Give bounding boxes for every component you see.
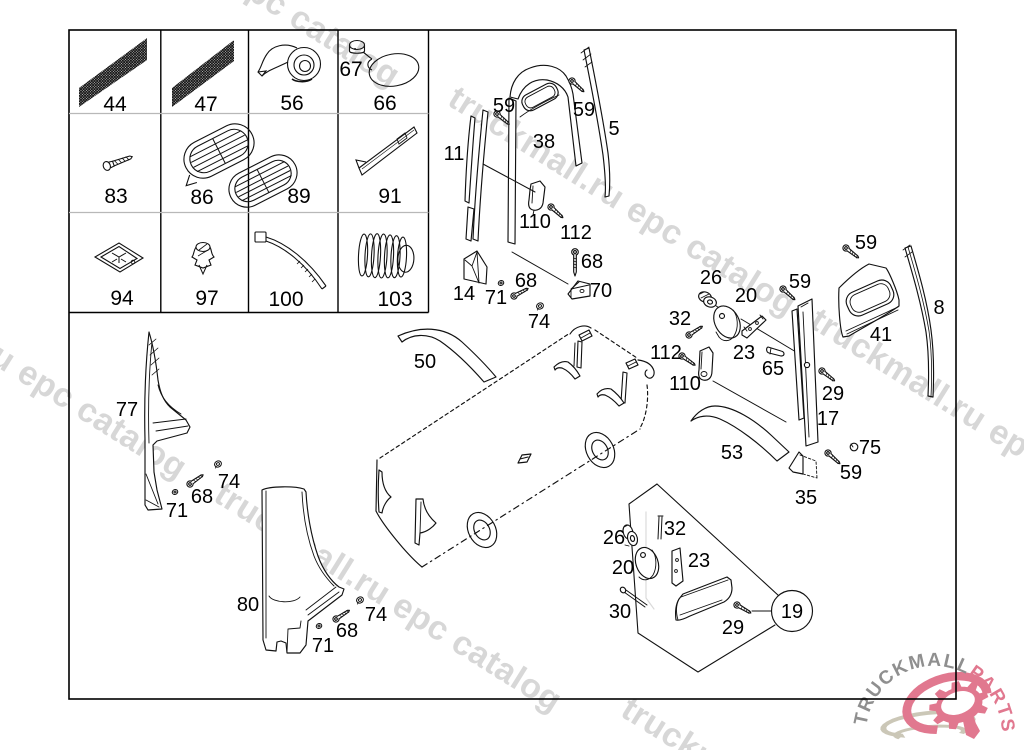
svg-text:19: 19 (781, 601, 803, 623)
svg-text:67: 67 (339, 58, 362, 81)
svg-text:59: 59 (493, 95, 515, 117)
svg-text:71: 71 (485, 287, 507, 309)
svg-text:59: 59 (789, 271, 811, 293)
svg-text:100: 100 (268, 288, 303, 311)
svg-text:20: 20 (735, 285, 757, 307)
svg-text:11: 11 (444, 143, 465, 165)
svg-text:68: 68 (191, 486, 213, 508)
svg-text:20: 20 (612, 557, 634, 579)
svg-text:26: 26 (603, 527, 625, 549)
svg-text:91: 91 (378, 185, 401, 208)
svg-text:71: 71 (166, 500, 188, 522)
svg-text:35: 35 (795, 487, 817, 509)
svg-text:89: 89 (287, 185, 310, 208)
svg-text:53: 53 (721, 442, 743, 464)
svg-text:38: 38 (533, 131, 555, 153)
svg-text:97: 97 (195, 287, 218, 310)
svg-text:8: 8 (933, 297, 944, 319)
svg-text:29: 29 (722, 617, 744, 639)
svg-text:5: 5 (608, 118, 619, 140)
svg-text:14: 14 (453, 283, 475, 305)
svg-text:68: 68 (336, 620, 358, 642)
svg-text:80: 80 (237, 594, 259, 616)
svg-text:74: 74 (218, 471, 240, 493)
svg-text:59: 59 (855, 232, 877, 254)
svg-text:30: 30 (609, 601, 631, 623)
svg-text:32: 32 (669, 308, 691, 330)
svg-text:74: 74 (528, 311, 550, 333)
svg-text:23: 23 (733, 342, 755, 364)
svg-text:70: 70 (590, 280, 612, 302)
svg-text:103: 103 (377, 288, 412, 311)
svg-text:23: 23 (688, 550, 710, 572)
svg-text:47: 47 (194, 93, 217, 116)
svg-text:59: 59 (573, 99, 595, 121)
svg-text:65: 65 (762, 358, 784, 380)
svg-text:66: 66 (373, 92, 396, 115)
svg-text:77: 77 (116, 399, 138, 421)
svg-text:71: 71 (312, 635, 334, 657)
svg-text:112: 112 (560, 222, 592, 244)
svg-text:68: 68 (515, 270, 537, 292)
svg-text:86: 86 (190, 186, 213, 209)
svg-text:74: 74 (365, 604, 387, 626)
svg-text:68: 68 (581, 251, 603, 273)
svg-text:50: 50 (414, 351, 436, 373)
svg-text:59: 59 (840, 462, 862, 484)
svg-text:94: 94 (110, 287, 134, 310)
svg-text:17: 17 (817, 408, 839, 430)
svg-text:110: 110 (519, 211, 551, 233)
svg-text:75: 75 (859, 437, 881, 459)
svg-text:truckmall.ru epc catalog: truckmall.ru epc catalog (0, 242, 194, 487)
svg-text:29: 29 (822, 383, 844, 405)
svg-text:112: 112 (650, 342, 682, 364)
svg-text:41: 41 (870, 324, 892, 346)
svg-text:56: 56 (280, 92, 303, 115)
svg-text:44: 44 (103, 93, 127, 116)
svg-text:110: 110 (669, 373, 701, 395)
svg-text:83: 83 (104, 185, 127, 208)
svg-text:32: 32 (664, 518, 686, 540)
svg-text:26: 26 (700, 267, 722, 289)
